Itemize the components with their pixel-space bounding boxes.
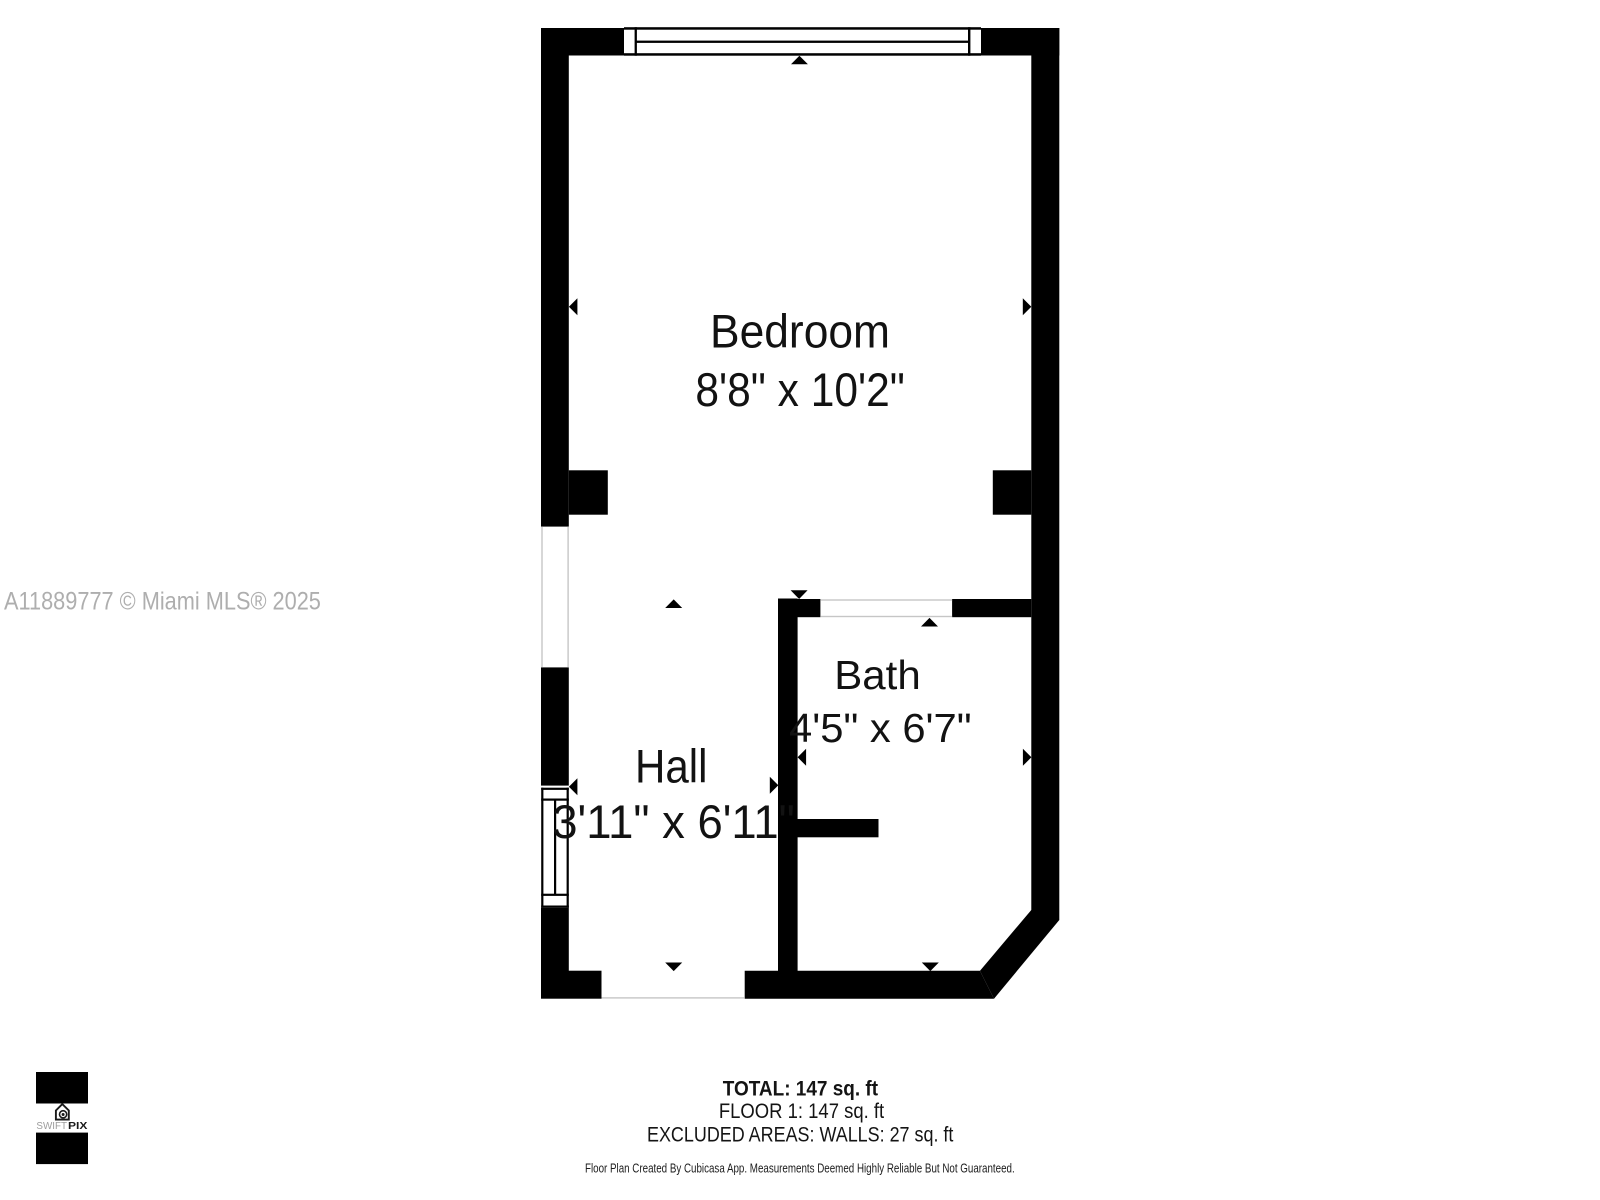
svg-text:Floor Plan Created By Cubicasa: Floor Plan Created By Cubicasa App. Meas… [585, 1161, 1015, 1176]
svg-text:3'11" x 6'11": 3'11" x 6'11" [552, 795, 795, 848]
svg-text:A11889777 © Miami MLS® 2025: A11889777 © Miami MLS® 2025 [4, 588, 321, 616]
svg-text:Hall: Hall [635, 740, 708, 793]
svg-text:8'8" x 10'2": 8'8" x 10'2" [695, 363, 905, 416]
svg-text:SWIFT: SWIFT [36, 1120, 67, 1132]
svg-text:EXCLUDED AREAS: WALLS: 27 sq.: EXCLUDED AREAS: WALLS: 27 sq. ft [647, 1124, 954, 1147]
svg-text:Bath: Bath [834, 652, 921, 698]
svg-text:4'5" x 6'7": 4'5" x 6'7" [789, 705, 972, 751]
svg-text:TOTAL: 147 sq. ft: TOTAL: 147 sq. ft [723, 1077, 878, 1100]
svg-text:PIX: PIX [68, 1120, 87, 1132]
svg-text:Bedroom: Bedroom [710, 305, 890, 358]
svg-text:FLOOR 1: 147 sq. ft: FLOOR 1: 147 sq. ft [719, 1100, 884, 1123]
